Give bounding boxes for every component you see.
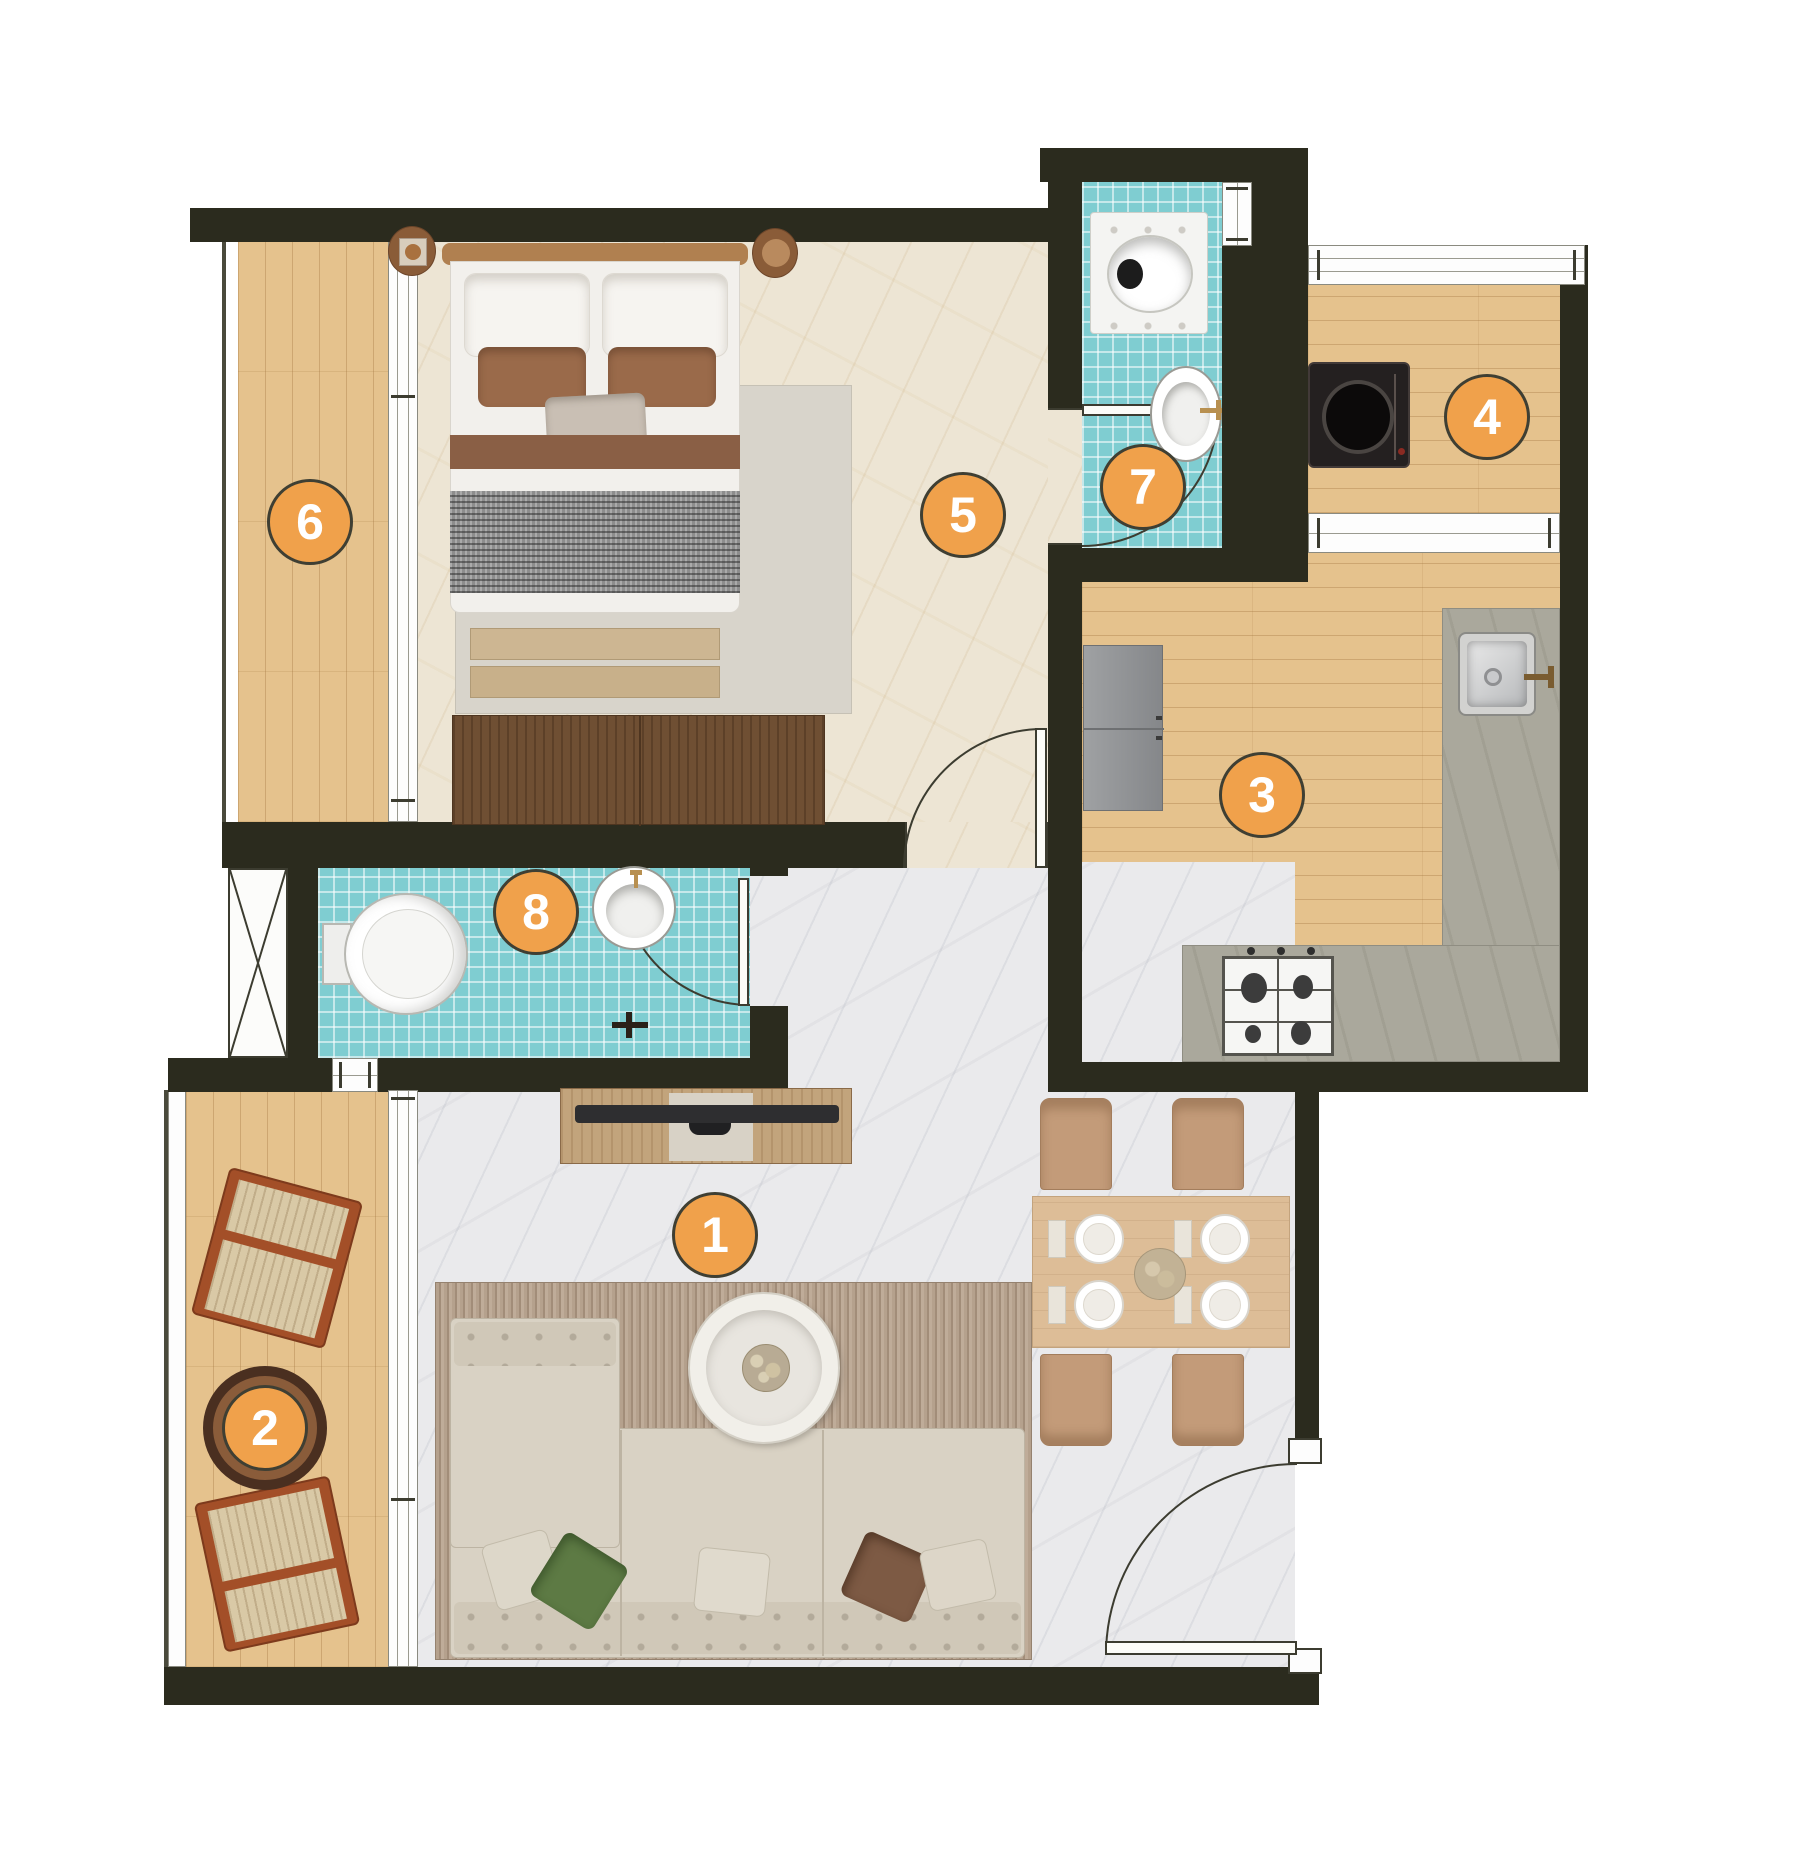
bed-blanket-gray [450,491,740,593]
dining-chair [1172,1354,1244,1446]
bedroom-dresser [452,715,825,825]
nightstand-right [752,228,798,278]
pillow-cream [693,1546,771,1617]
bedroom-door-leaf [1035,728,1047,868]
laundry-4-window-top [1308,245,1585,285]
bath8-floor-drain [612,1012,648,1038]
gas-stove [1222,956,1334,1056]
dining-set [1032,1090,1290,1450]
exterior-gap [150,862,228,1058]
squat-toilet [1090,212,1208,334]
laundry-4-window-bottom [1308,513,1560,553]
bed-bench [470,628,720,700]
coffee-table [688,1292,840,1444]
living-balcony2-window [388,1090,418,1667]
kitchen-sink [1458,632,1536,716]
dining-chair [1040,1354,1112,1446]
balcony-2-left-glass [168,1090,186,1667]
dining-chair [1040,1098,1112,1190]
room-marker-2[interactable]: 2 [222,1385,308,1471]
napkin [1048,1286,1066,1324]
entry-jamb-top [1288,1438,1322,1464]
place-setting [1200,1214,1250,1264]
wall-right-main [1560,245,1588,1090]
dining-chair [1172,1098,1244,1190]
place-setting [1074,1214,1124,1264]
washing-machine [1308,362,1410,468]
wall-entry-right-upper [1295,1092,1319,1462]
wall-bedroom-bottom [222,822,905,868]
wall-bath7-right [1222,246,1252,548]
service-shaft [228,868,288,1058]
bath7-door-threshold [1048,408,1082,545]
table-plant [742,1344,790,1392]
tv [575,1105,839,1123]
bed-blanket-brown [450,435,740,469]
room-marker-3[interactable]: 3 [1219,752,1305,838]
bed-pillow [602,273,728,357]
floor-plan: 1 2 3 4 5 6 7 8 [0,0,1796,1852]
napkin [1174,1220,1192,1258]
tv-console [560,1088,852,1164]
bath8-door-leaf [738,878,749,1006]
room-marker-1[interactable]: 1 [672,1192,758,1278]
bath7-window [1222,182,1252,246]
room-marker-5[interactable]: 5 [920,472,1006,558]
wall-kitchen-bottom [1048,1062,1588,1092]
room-marker-7[interactable]: 7 [1100,444,1186,530]
dining-centerpiece [1134,1248,1186,1300]
place-setting [1200,1280,1250,1330]
nightstand-left [388,226,436,276]
room-marker-8[interactable]: 8 [493,869,579,955]
wall-bottom [164,1667,1319,1705]
napkin [1048,1220,1066,1258]
wall-bath8-bottom-right [378,1058,788,1092]
wall-bath8-bottom-left [168,1058,332,1092]
wall-top [190,208,1072,242]
balcony-6-outer-rail [222,242,226,822]
toilet [322,893,470,1015]
place-setting [1074,1280,1124,1330]
entrance-door-leaf [1105,1641,1297,1655]
wall-bath7-left-upper [1048,182,1082,408]
bedroom-balcony6-window [388,242,418,822]
wall-kitchen-left [1048,548,1082,1092]
bed [442,243,748,613]
room-marker-6[interactable]: 6 [267,479,353,565]
room-marker-4[interactable]: 4 [1444,374,1530,460]
bath8-sink [592,866,676,950]
refrigerator [1083,645,1163,811]
bath8-vent-window [332,1058,378,1092]
wall-bath8-right-upper [750,822,788,876]
wall-bath7-laundry [1252,148,1308,582]
bed-pillow [464,273,590,357]
